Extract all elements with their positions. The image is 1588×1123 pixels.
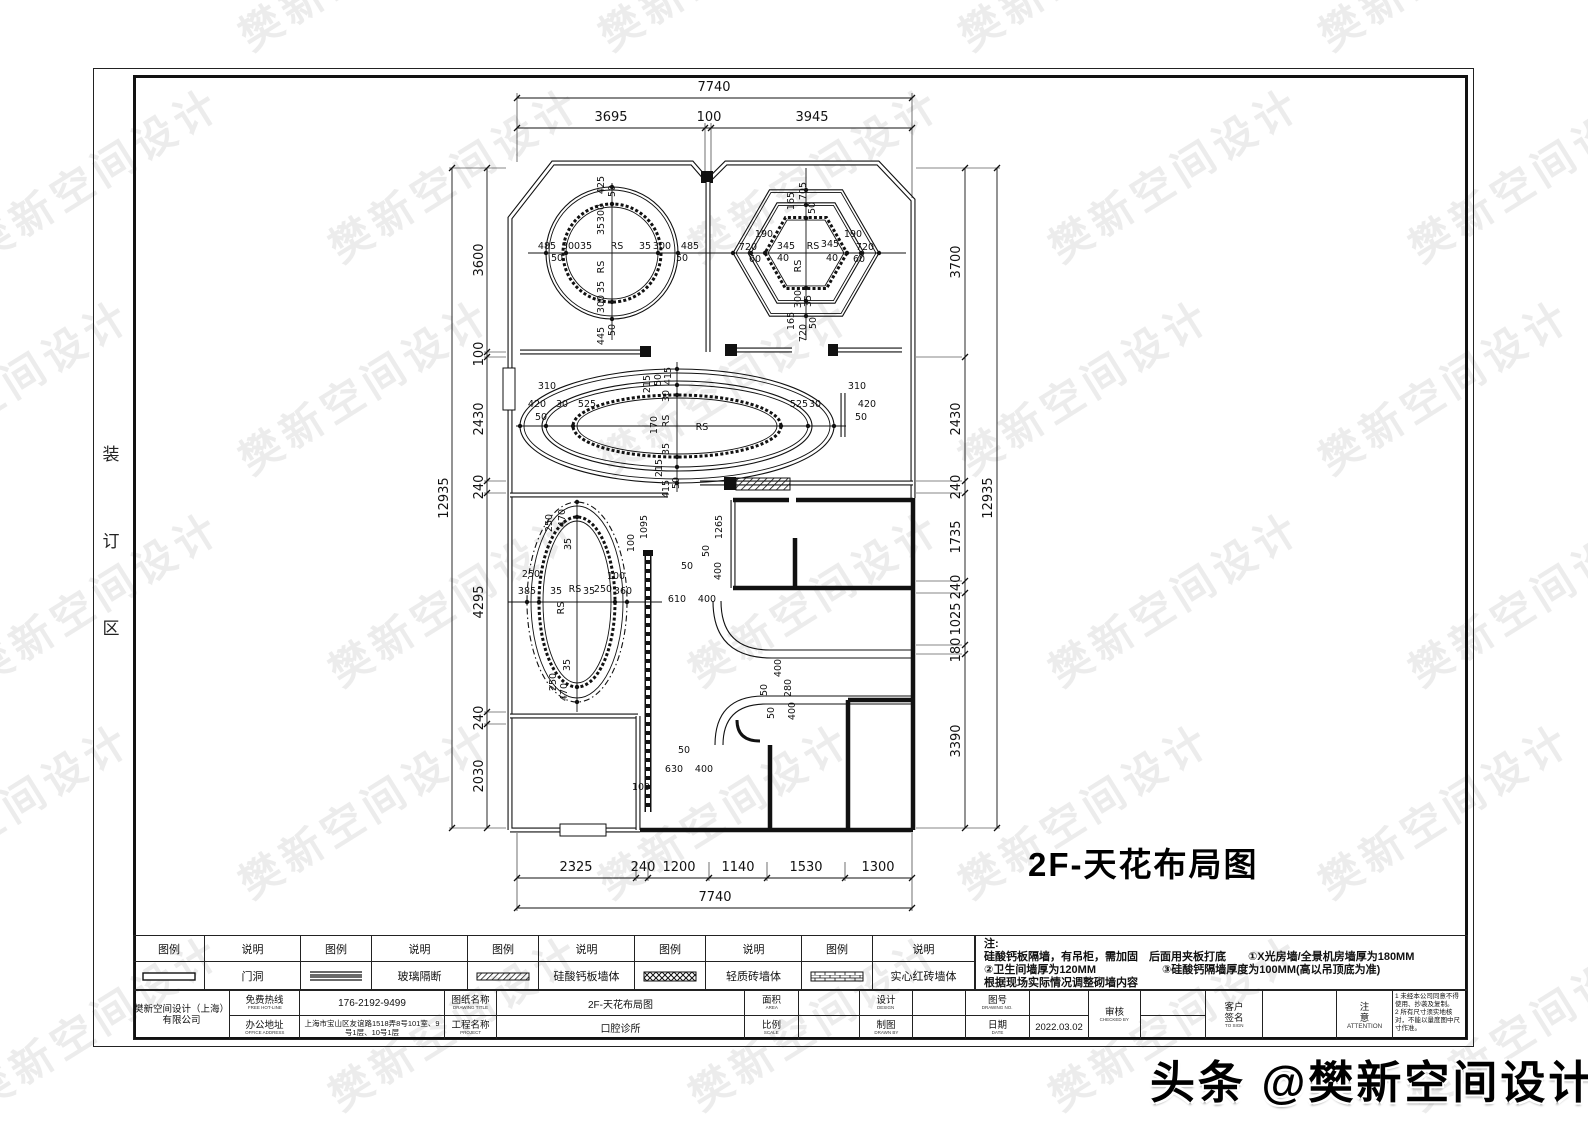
field-sublabel: TO SIGN xyxy=(1225,1024,1243,1029)
company-name: 有限公司 xyxy=(162,1015,200,1026)
notes-line: 硅酸钙板隔墙，有吊柜，需加固 后面用夹板打底 ①X光房墙/全景机房墙厚为180M… xyxy=(984,951,1467,964)
dim-label: 1265 xyxy=(714,515,725,539)
dim-label: 35 xyxy=(803,295,814,307)
dim-label: 400 xyxy=(787,702,798,720)
dim-label: 3700 xyxy=(949,245,964,278)
design-label-cell: 设计 DESIGN xyxy=(859,990,913,1016)
drawing-no-value xyxy=(1029,990,1089,1016)
dim-label: 30 xyxy=(556,399,568,410)
legend-symbol-col: 图例 xyxy=(133,935,205,990)
dim-label: 35 xyxy=(661,443,672,455)
dim-label: 610 xyxy=(668,594,686,605)
dim-label: 50 xyxy=(807,202,818,214)
dim-label: 470 xyxy=(559,683,570,701)
notes-title: 注: xyxy=(984,938,1467,951)
dim-label: 240 xyxy=(949,575,964,600)
dim-label: 300 xyxy=(596,295,607,313)
dim-label: 50 xyxy=(676,253,688,264)
legend-desc-col: 说明 实心红砖墙体 xyxy=(872,935,975,990)
field-sublabel: PROJECT xyxy=(460,1031,481,1036)
dim-label: 3600 xyxy=(472,243,487,276)
dim-label: 50 xyxy=(535,412,547,423)
dim-label: 720 xyxy=(856,242,874,253)
legend-label: 硅酸钙板墙体 xyxy=(539,962,634,990)
field-label: 意 xyxy=(1360,1013,1370,1024)
draft-label-cell: 制图 DRAWN BY xyxy=(859,1015,913,1040)
dim-label: RS xyxy=(696,422,709,433)
dim-label: 300 xyxy=(562,241,580,252)
dim-label: 280 xyxy=(783,679,794,697)
field-sublabel: ATTENTION xyxy=(1347,1024,1382,1029)
dim-label: 190 xyxy=(755,229,773,240)
dim-label: RS xyxy=(556,602,567,615)
dim-label: 3695 xyxy=(594,110,627,125)
dim-label: 425 xyxy=(596,176,607,194)
dim-label: RS xyxy=(596,261,607,274)
legend-label: 玻璃隔断 xyxy=(372,962,467,990)
dim-label: 485 xyxy=(538,241,556,252)
dim-label: 240 xyxy=(949,475,964,500)
check-value-bottom xyxy=(1140,1015,1206,1040)
dim-label: RS xyxy=(611,241,624,252)
dim-label: 705 xyxy=(798,182,809,200)
attention-label-cell: 注 意 ATTENTION xyxy=(1336,990,1393,1040)
dim-label: 35 xyxy=(550,586,562,597)
legend-header: 图例 xyxy=(468,936,538,962)
field-label: 审核 xyxy=(1105,1007,1124,1018)
dim-label: 4295 xyxy=(472,585,487,618)
field-label: 免费热线 xyxy=(245,995,283,1006)
dim-label: 345 xyxy=(777,241,795,252)
drawing-title-value: 2F-天花布局图 xyxy=(496,990,745,1016)
legend-header: 图例 xyxy=(635,936,705,962)
dim-label: RS xyxy=(793,260,804,273)
dim-label: 40 xyxy=(777,253,789,264)
area-label-cell: 面积 AREA xyxy=(744,990,799,1016)
field-sublabel: SCALE xyxy=(764,1031,779,1036)
field-label: 制图 xyxy=(876,1020,895,1031)
dim-label: 50 xyxy=(766,707,777,719)
dim-label: 2030 xyxy=(472,759,487,792)
check-label-cell: 审核 CHECKED BY xyxy=(1088,990,1141,1040)
dim-label: 12935 xyxy=(437,477,452,518)
notes: 注: 硅酸钙板隔墙，有吊柜，需加固 后面用夹板打底 ①X光房墙/全景机房墙厚为1… xyxy=(975,935,1468,990)
legend-label: 实心红砖墙体 xyxy=(873,962,974,990)
legend-header: 图例 xyxy=(134,936,204,962)
dim-label: 525 xyxy=(578,399,596,410)
legend-symbol-col: 图例 xyxy=(801,935,873,990)
legend-symbol-col: 图例 xyxy=(467,935,539,990)
calcium-silicate-wall-symbol xyxy=(468,962,538,990)
dim-label: 100 xyxy=(632,782,650,793)
watermark-badge: 头条 @樊新空间设计 xyxy=(1150,1046,1588,1111)
field-label: 办公地址 xyxy=(245,1020,283,1031)
dim-label: 1140 xyxy=(721,860,754,875)
dim-label: 470 xyxy=(557,509,568,527)
field-sublabel: CHECKED BY xyxy=(1100,1018,1129,1023)
check-value-top xyxy=(1140,990,1206,1016)
dim-label: 630 xyxy=(665,764,683,775)
drawing-title-label-cell: 图纸名称 DRAWING TITLE xyxy=(444,990,497,1016)
legend-desc-col: 说明 门洞 xyxy=(204,935,301,990)
dim-label: 420 xyxy=(858,399,876,410)
dim-label: 250 xyxy=(594,584,612,595)
dim-label: 215 xyxy=(642,375,653,393)
dim-label: 35 xyxy=(596,223,607,235)
field-label: 工程名称 xyxy=(451,1020,489,1031)
dim-label: 310 xyxy=(848,381,866,392)
dim-label: 50 xyxy=(808,317,819,329)
attention-notes-cell: 1 未经本公司同意不得使用、抄袭及复制。 2 所有尺寸须实地核对，不能以量度图中… xyxy=(1392,990,1468,1040)
hotline-label-cell: 免费热线 FREE HOT-LINE xyxy=(229,990,300,1016)
dim-label: 310 xyxy=(538,381,556,392)
dim-label: 50 xyxy=(671,477,682,489)
address-label-cell: 办公地址 OFFICE ADDRESS xyxy=(229,1015,300,1040)
legend-desc-col: 说明 玻璃隔断 xyxy=(371,935,468,990)
client-sign-value xyxy=(1262,990,1337,1040)
legend-header: 说明 xyxy=(539,936,634,962)
company-name: 樊新空间设计（上海） xyxy=(134,1004,229,1015)
field-label: 注 xyxy=(1360,1002,1370,1013)
legend-symbol-col: 图例 xyxy=(300,935,372,990)
dim-label: 240 xyxy=(472,475,487,500)
dimension-lines xyxy=(449,93,1000,911)
legend-header: 说明 xyxy=(873,936,974,962)
dim-label: 60 xyxy=(853,254,865,265)
dim-label: 35 xyxy=(563,538,574,550)
legend-desc-col: 说明 硅酸钙板墙体 xyxy=(538,935,635,990)
dim-label: 400 xyxy=(698,594,716,605)
dim-label: 12935 xyxy=(981,477,996,518)
date-value: 2022.03.02 xyxy=(1029,1015,1089,1040)
scale-value xyxy=(798,1015,860,1040)
dim-label: 30 xyxy=(809,399,821,410)
dim-label: 415 xyxy=(663,367,674,385)
field-sublabel: DRAWING TITLE xyxy=(453,1006,488,1011)
dim-label: 3945 xyxy=(795,110,828,125)
field-sublabel: FREE HOT-LINE xyxy=(247,1006,281,1011)
notes-line: 根据现场实际情况调整砌墙内容 xyxy=(984,977,1467,990)
dim-label: 1530 xyxy=(789,860,822,875)
dim-label: 345 xyxy=(821,239,839,250)
solid-red-brick-wall-symbol xyxy=(802,962,872,990)
legend-header: 说明 xyxy=(205,936,300,962)
hatched-partition-wall xyxy=(643,550,653,812)
field-sublabel: DATE xyxy=(992,1031,1004,1036)
dim-label: 40 xyxy=(826,253,838,264)
attention-note: 2 所有尺寸须实地核对，不能以量度图中尺寸作准。 xyxy=(1395,1009,1465,1033)
dim-label: 30 xyxy=(661,390,672,402)
field-label: 图号 xyxy=(988,995,1007,1006)
dim-label: 420 xyxy=(528,399,546,410)
dim-label: 400 xyxy=(713,562,724,580)
dim-label: 1300 xyxy=(861,860,894,875)
dim-label: 100 xyxy=(626,534,637,552)
project-value: 口腔诊所 xyxy=(496,1015,745,1040)
dim-label: 2430 xyxy=(472,402,487,435)
dim-label: 215 xyxy=(654,459,665,477)
company-cell: 樊新空间设计（上海） 有限公司 xyxy=(133,990,230,1040)
dim-label: 250 xyxy=(522,569,540,580)
draft-value xyxy=(912,1015,966,1040)
dim-label: 1095 xyxy=(639,515,650,539)
light-brick-wall-symbol xyxy=(635,962,705,990)
legend-desc-col: 说明 轻质砖墙体 xyxy=(705,935,802,990)
dim-label: 50 xyxy=(607,324,618,336)
dim-label: 300 xyxy=(653,241,671,252)
dim-label: RS xyxy=(661,415,672,428)
dim-label: RS xyxy=(569,584,582,595)
dim-label: 250 xyxy=(548,673,559,691)
client-sign-label-cell: 客户 签名 TO SIGN xyxy=(1205,990,1263,1040)
dim-label: 165 xyxy=(786,312,797,330)
field-label: 面积 xyxy=(762,995,781,1006)
glass-partition-symbol xyxy=(301,962,371,990)
dim-label: 3390 xyxy=(949,724,964,757)
drawing-sheet: 樊新空间设计樊新空间设计樊新空间设计樊新空间设计樊新空间设计樊新空间设计樊新空间… xyxy=(0,0,1588,1123)
dim-label: 445 xyxy=(596,327,607,345)
field-sublabel: DRAWING NO. xyxy=(982,1006,1013,1011)
dim-label: 50 xyxy=(551,253,563,264)
dim-label: RS xyxy=(807,241,820,252)
dim-label: 50 xyxy=(681,561,693,572)
field-label: 比例 xyxy=(762,1020,781,1031)
dim-label: 240 xyxy=(472,706,487,731)
legend-header: 说明 xyxy=(372,936,467,962)
dim-label: 240 xyxy=(631,860,656,875)
dim-label: 7740 xyxy=(698,890,731,905)
dim-label: 100 xyxy=(472,342,487,367)
drawing-title: 2F-天花布局图 xyxy=(1028,838,1259,886)
dim-label: 1025 xyxy=(949,602,964,635)
field-label: 日期 xyxy=(988,1020,1007,1031)
dim-label: 360 xyxy=(614,586,632,597)
dim-label: 300 xyxy=(596,204,607,222)
door-opening-symbol xyxy=(134,962,204,990)
dim-label: 50 xyxy=(759,684,770,696)
scale-label-cell: 比例 SCALE xyxy=(744,1015,799,1040)
field-sublabel: AREA xyxy=(765,1006,777,1011)
field-sublabel: DRAWN BY xyxy=(874,1031,898,1036)
dim-label: 165 xyxy=(786,192,797,210)
address-value: 上海市宝山区友谊路1518弄8号101室、9号1层、10号1层 xyxy=(299,1015,445,1040)
legend-symbol-col: 图例 xyxy=(634,935,706,990)
legend-header: 图例 xyxy=(802,936,872,962)
dim-label: 485 xyxy=(681,241,699,252)
project-label-cell: 工程名称 PROJECT xyxy=(444,1015,497,1040)
dim-label: 525 xyxy=(790,399,808,410)
dim-label: 2430 xyxy=(949,402,964,435)
dim-label: 50 xyxy=(855,412,867,423)
dim-label: 100 xyxy=(697,110,722,125)
title-block: 樊新空间设计（上海） 有限公司 免费热线 FREE HOT-LINE 办公地址 … xyxy=(133,990,1468,1040)
dim-label: 250 xyxy=(544,514,555,532)
legend-header: 图例 xyxy=(301,936,371,962)
dim-label: 170 xyxy=(649,416,660,434)
field-label: 客户 xyxy=(1224,1002,1243,1013)
dim-label: 1200 xyxy=(662,860,695,875)
corridor-curves xyxy=(713,601,913,745)
dim-label: 2325 xyxy=(559,860,592,875)
dim-label: 400 xyxy=(773,659,784,677)
masonry-walls xyxy=(724,477,913,830)
dim-label: 35 xyxy=(639,241,651,252)
dim-label: 400 xyxy=(695,764,713,775)
field-label: 签名 xyxy=(1224,1013,1243,1024)
dim-label: 100 xyxy=(607,571,625,582)
field-sublabel: DESIGN xyxy=(877,1006,894,1011)
dim-label: 385 xyxy=(518,586,536,597)
dim-label: 720 xyxy=(739,242,757,253)
area-value xyxy=(798,990,860,1016)
dim-label: 35 xyxy=(596,281,607,293)
legend-label: 轻质砖墙体 xyxy=(706,962,801,990)
hotline-value: 176-2192-9499 xyxy=(299,990,445,1016)
legend-header: 说明 xyxy=(706,936,801,962)
field-label: 设计 xyxy=(876,995,895,1006)
notes-line: ②卫生间墙厚为120MM ③硅酸钙隔墙厚度为100MM(高以吊顶底为准) xyxy=(984,964,1467,977)
dim-label: 190 xyxy=(844,229,862,240)
dim-label: 7740 xyxy=(697,80,730,95)
dim-label: 180 xyxy=(949,638,964,663)
field-label: 图纸名称 xyxy=(451,995,489,1006)
design-value xyxy=(912,990,966,1016)
dim-label: 50 xyxy=(678,745,690,756)
dim-label: 1735 xyxy=(949,520,964,553)
drawing-no-label-cell: 图号 DRAWING NO. xyxy=(965,990,1030,1016)
attention-note: 1 未经本公司同意不得使用、抄袭及复制。 xyxy=(1395,993,1465,1009)
dim-label: 60 xyxy=(749,254,761,265)
dim-label: 50 xyxy=(701,545,712,557)
dim-label: 35 xyxy=(580,241,592,252)
dim-label: 35 xyxy=(562,659,573,671)
field-sublabel: OFFICE ADDRESS xyxy=(245,1031,284,1036)
legend-label: 门洞 xyxy=(205,962,300,990)
dim-label: 50 xyxy=(607,185,618,197)
date-label-cell: 日期 DATE xyxy=(965,1015,1030,1040)
